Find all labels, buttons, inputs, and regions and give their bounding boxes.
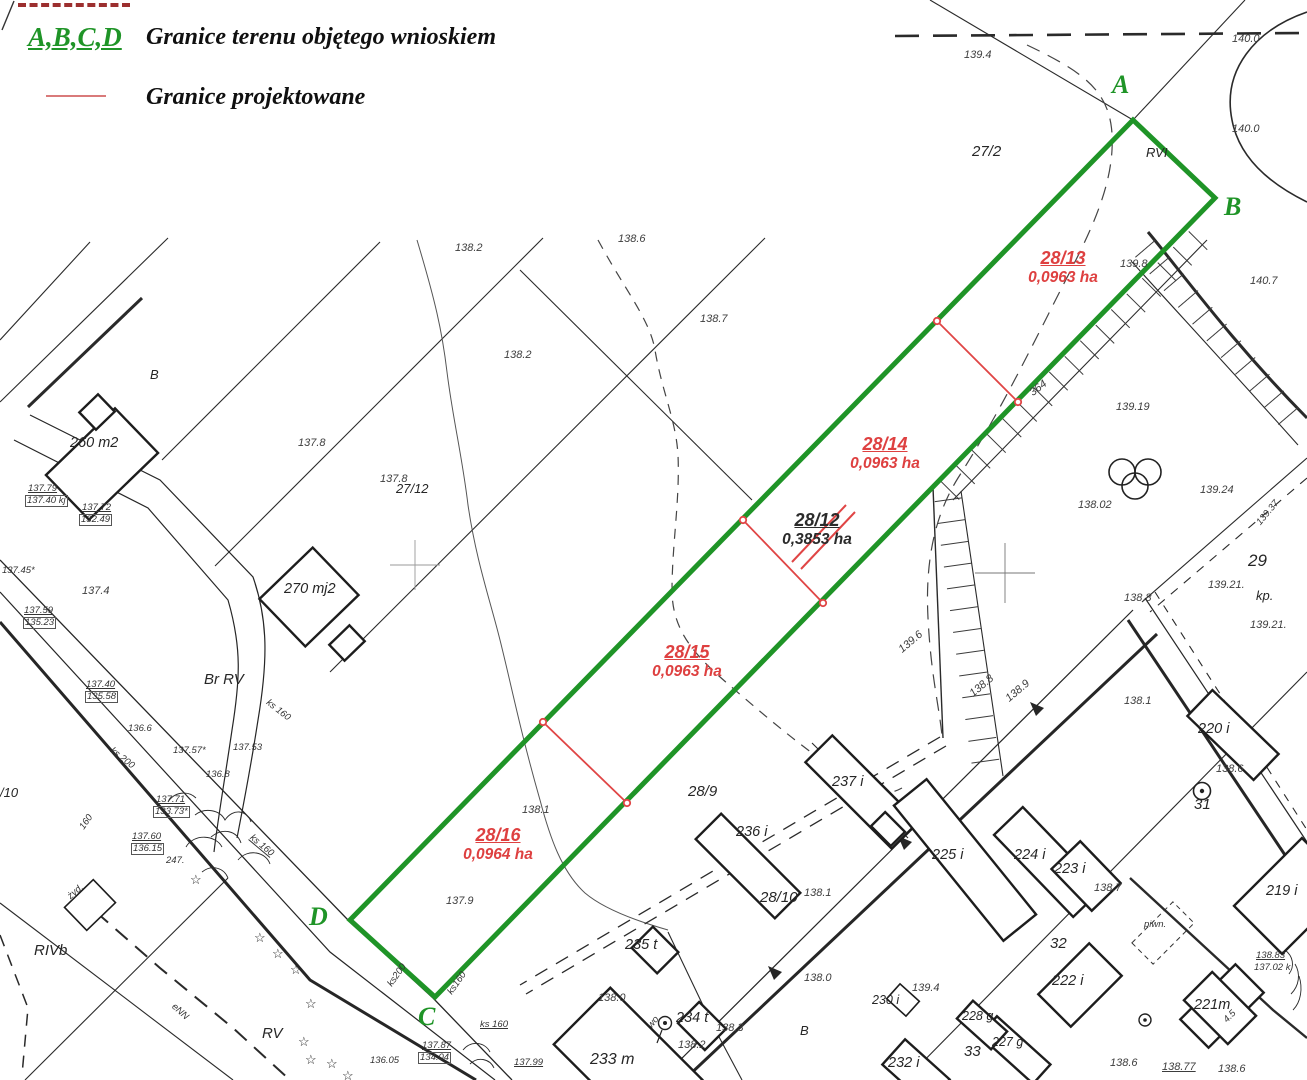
parcel-28-14: 28/14 0,0963 ha	[827, 434, 943, 473]
tree-icon: ☆	[290, 962, 302, 978]
elevation-label: 139.21.	[1250, 620, 1287, 631]
survey-point-label: 137.40 kj	[26, 496, 67, 506]
land-class-label: B	[800, 1024, 809, 1037]
building-label: 220 i	[1198, 722, 1229, 737]
building-label: 219 i	[1266, 884, 1297, 899]
building-label: 260 m2	[70, 436, 118, 451]
tree-icon: ☆	[342, 1068, 354, 1080]
corner-c: C	[418, 1004, 435, 1030]
elevation-label: 138.6	[618, 234, 646, 245]
cadastral-map: A,B,C,D Granice terenu objętego wnioskie…	[0, 0, 1307, 1080]
building-label: 236 i	[736, 825, 767, 840]
elevation-label: 137.9	[446, 896, 474, 907]
parcel-number: 32	[1050, 936, 1067, 951]
building-label: 233 m	[590, 1052, 634, 1068]
elevation-label: 139.19	[1116, 402, 1150, 413]
building-label: 232 i	[888, 1056, 919, 1071]
elevation-label: 139.4	[912, 983, 940, 994]
survey-point-label: 137.57*	[173, 746, 206, 756]
land-class-label: RV	[262, 1026, 283, 1041]
parcel-number: 27/2	[972, 144, 1001, 159]
elevation-label: 139.21.	[1208, 580, 1245, 591]
survey-point-label: 136.8	[206, 770, 230, 780]
legend-item-projected: Granice projektowane	[146, 84, 365, 111]
parcel-lines	[0, 0, 1307, 1080]
elevation-label: 138.1	[522, 805, 550, 816]
survey-point-label: 137.02 k	[1254, 963, 1290, 973]
tree-icon: ☆	[190, 872, 202, 888]
parcel-number: 29	[1248, 552, 1267, 569]
elevation-label: 138.2	[504, 350, 532, 361]
utility-label: kp.	[1256, 589, 1273, 602]
elevation-label: 138.6	[1216, 764, 1244, 775]
elevation-label: 137.4	[82, 586, 110, 597]
elevation-label: 138.02	[1078, 500, 1112, 511]
legend-red-line	[46, 95, 106, 97]
elevation-label: 138.0	[804, 973, 832, 984]
survey-point-label: 132.49	[80, 515, 111, 525]
legend-dashed-line	[18, 3, 130, 7]
parcel-28-16: 28/16 0,0964 ha	[440, 825, 556, 864]
tree-icon: ☆	[272, 946, 284, 962]
survey-point-label: 247.	[166, 856, 185, 866]
elevation-label: 140.7	[1250, 276, 1278, 287]
basement-outline	[1132, 902, 1194, 964]
elevation-label: 138.7	[1094, 883, 1122, 894]
elevation-label: 138.6	[1110, 1058, 1138, 1069]
survey-point-label: 137.71	[156, 795, 185, 805]
tree-icon: ☆	[298, 1034, 310, 1050]
survey-point-label: 137.72	[82, 503, 111, 513]
elevation-label: 138.8	[1124, 593, 1152, 604]
survey-point-label: 136.15	[132, 844, 163, 854]
survey-point-label: 137.87	[422, 1041, 451, 1051]
parcel-number: 28/9	[688, 784, 717, 799]
corner-b: B	[1224, 194, 1241, 220]
survey-point-label: 137.99	[514, 1058, 543, 1068]
parcel-28-15: 28/15 0,0963 ha	[629, 642, 745, 681]
elevation-label: 138.6	[1218, 1064, 1246, 1075]
survey-point-label: 137.59	[24, 606, 53, 616]
elevation-label: 138.3	[716, 1023, 744, 1034]
parcel-number: /10	[0, 786, 18, 799]
building-label: 225 i	[932, 848, 963, 863]
buildings	[46, 394, 1307, 1080]
elevation-label: 139.4	[964, 50, 992, 61]
slope-hatch-bands	[933, 230, 1307, 774]
building-label: 228 g	[962, 1010, 993, 1023]
building-label: 270 mj2	[284, 582, 336, 597]
building-label: 230 i	[872, 994, 899, 1007]
legend-item-boundary: Granice terenu objętego wnioskiem	[146, 24, 496, 51]
parcel-number: 28/10	[760, 890, 798, 905]
elevation-label: 137.8	[298, 438, 326, 449]
survey-point-label: 135.58	[86, 692, 117, 702]
building-label: 221m	[1194, 998, 1230, 1013]
survey-point-label: 135.23	[24, 618, 55, 628]
building-label: 227 g	[992, 1036, 1023, 1049]
elevation-label: 138.2	[678, 1040, 706, 1051]
elevation-label: 140.0	[1232, 124, 1260, 135]
survey-point-label: 133.73*	[154, 807, 189, 817]
parcel-number: 27/12	[396, 482, 429, 495]
survey-point-label: 137.40	[86, 680, 115, 690]
survey-point-label: 137.45*	[2, 566, 35, 576]
building-label: 234 t	[676, 1011, 708, 1026]
well-number: 31	[1194, 797, 1211, 812]
elevation-label: 138.7	[700, 314, 728, 325]
elevation-label: 138.1	[1124, 696, 1152, 707]
parcel-number: 33	[964, 1044, 981, 1059]
land-class-label: B	[150, 368, 159, 381]
parcel-28-13: 28/13 0,0963 ha	[1005, 248, 1121, 287]
building-label: 224 i	[1014, 848, 1045, 863]
parcel-28-12-old: 28/12 0,3853 ha	[759, 510, 875, 549]
building-label: 223 i	[1054, 862, 1085, 877]
survey-point-label: 137.79	[28, 484, 57, 494]
corner-a: A	[1112, 72, 1129, 98]
corner-d: D	[309, 904, 328, 930]
land-class-label: RVI	[1146, 146, 1167, 159]
survey-point-label: 136.05	[370, 1056, 399, 1066]
elevation-label: 139.24	[1200, 485, 1234, 496]
land-class-label: Br RV	[204, 672, 244, 687]
tree-icon: ☆	[326, 1056, 338, 1072]
elevation-label: 138.1	[804, 888, 832, 899]
elevation-label: 138.2	[455, 243, 483, 254]
elevation-label: 139.8	[1120, 259, 1148, 270]
survey-point-label: 138.83	[1256, 951, 1285, 961]
building-label: 235 t	[625, 938, 657, 953]
tree-icon: ☆	[254, 930, 266, 946]
elevation-label: 140.0	[1232, 34, 1260, 45]
elevation-label: 138.77	[1162, 1062, 1196, 1073]
corner-mark	[2, 1, 14, 30]
tree-icon: ☆	[305, 996, 317, 1012]
building-label: 222 i	[1052, 974, 1083, 989]
survey-point-label: 137.53	[233, 743, 262, 753]
sewer-label: ks 160	[480, 1020, 508, 1030]
elevation-label: 138.0	[598, 993, 626, 1004]
building-label: 237 i	[832, 775, 863, 790]
basement-label: piwn.	[1144, 920, 1166, 930]
legend-abcd: A,B,C,D	[28, 22, 122, 53]
tree-icon: ☆	[305, 1052, 317, 1068]
land-class-label: RIVb	[34, 943, 67, 958]
survey-point-label: 137.60	[132, 832, 161, 842]
survey-point-label: 134.04	[419, 1053, 450, 1063]
map-linework	[0, 0, 1307, 1080]
elevation-label: 136.6	[128, 724, 152, 734]
